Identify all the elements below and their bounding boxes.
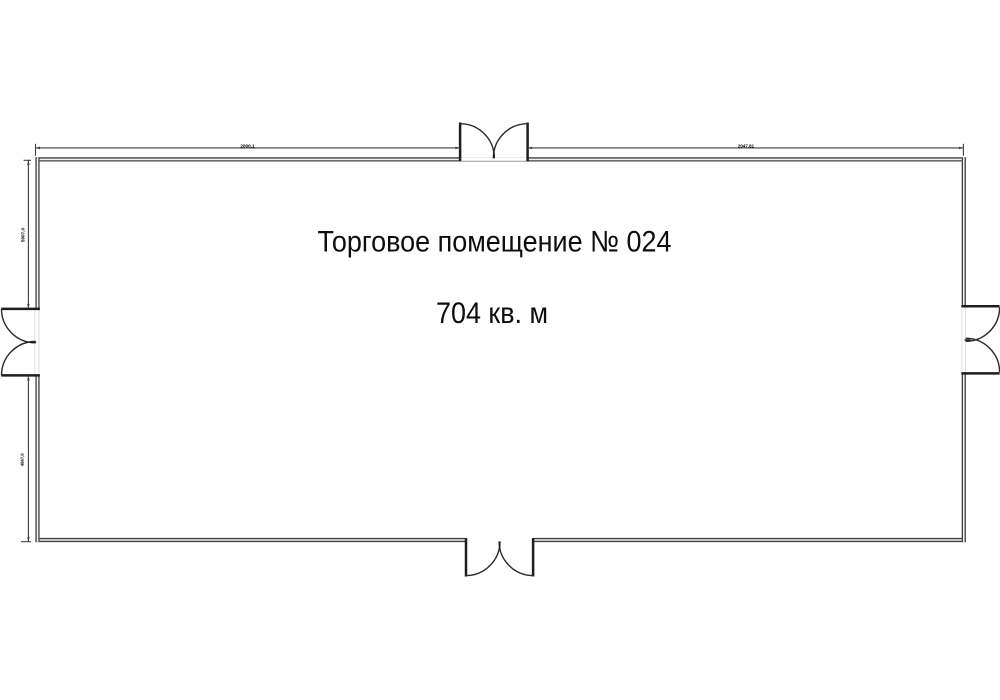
svg-text:5907,0: 5907,0 <box>20 227 25 242</box>
svg-text:704 кв. м: 704 кв. м <box>436 297 548 330</box>
svg-text:2047,81: 2047,81 <box>738 143 755 148</box>
svg-text:2000,1: 2000,1 <box>240 143 255 148</box>
svg-text:Торговое помещение № 024: Торговое помещение № 024 <box>318 225 672 258</box>
svg-text:4567,0: 4567,0 <box>20 453 25 466</box>
